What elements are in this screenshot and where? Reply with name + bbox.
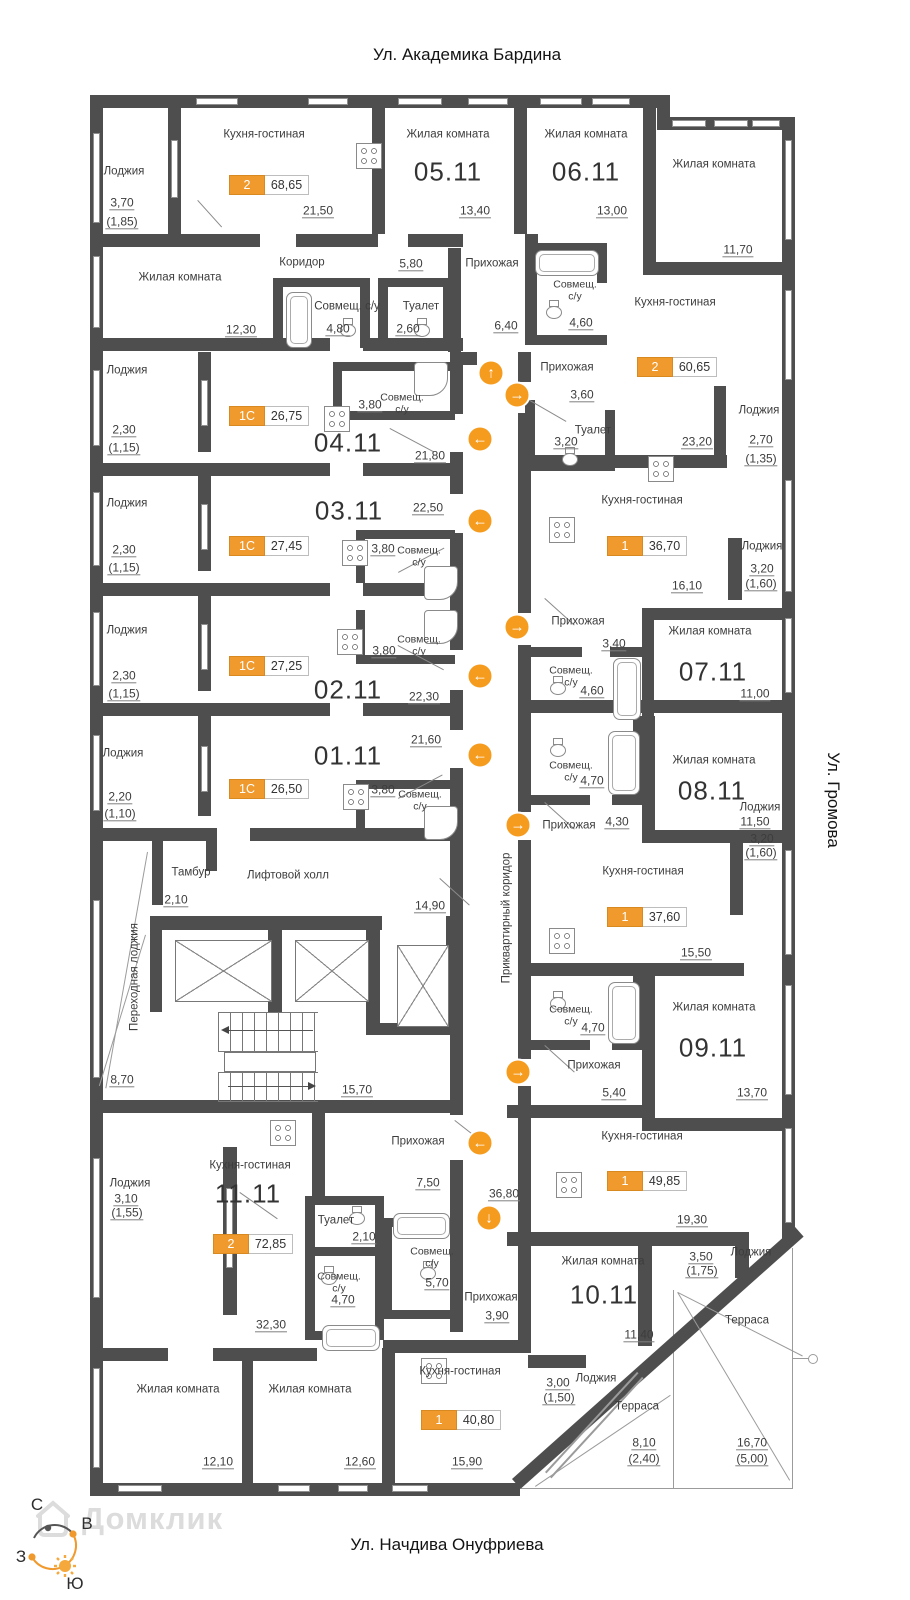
entrance-arrow-icon: → — [505, 1059, 532, 1086]
apartment-number: 03.11 — [315, 496, 383, 527]
dimension-label: 12,10 — [202, 1454, 234, 1469]
room-label: Жилая комната — [406, 129, 489, 142]
dimension-label: (1,75) — [685, 1263, 718, 1278]
apartment-number: 05.11 — [414, 157, 482, 188]
unit-badge: 140,80 — [421, 1410, 501, 1430]
window — [592, 98, 630, 105]
window — [278, 1485, 310, 1492]
window — [171, 140, 178, 198]
wall — [450, 452, 463, 494]
stairs-landing — [224, 1052, 316, 1072]
dimension-label: 13,70 — [736, 1085, 768, 1100]
unit-area-value: 68,65 — [265, 175, 309, 195]
compass-east-label: В — [81, 1514, 92, 1534]
window — [785, 618, 792, 693]
room-label: Кухня-гостиная — [601, 1131, 682, 1144]
stairs-arrow-line — [228, 1030, 313, 1031]
compass-north-label: С — [31, 1495, 43, 1515]
dimension-label: 2,10 — [163, 892, 188, 907]
wall — [530, 647, 582, 657]
room-label: Совмещ. с/у — [410, 1246, 454, 1270]
dimension-label: 14,90 — [414, 898, 446, 913]
elevator-icon — [397, 945, 449, 1027]
dimension-label: 3,60 — [569, 387, 594, 402]
wall — [356, 530, 455, 539]
stairs-arrow-icon — [308, 1082, 316, 1090]
stove-icon — [556, 1172, 582, 1198]
dimension-label: 16,70 — [736, 1435, 768, 1450]
window — [338, 1485, 368, 1492]
unit-badge: 272,85 — [213, 1234, 293, 1254]
dimension-label: 7,50 — [415, 1175, 440, 1190]
dimension-label: 11,40 — [623, 1327, 654, 1342]
stove-icon — [648, 456, 674, 482]
window — [785, 290, 792, 380]
unit-type-badge: 2 — [213, 1234, 249, 1254]
window — [201, 504, 208, 550]
wall — [242, 1361, 253, 1483]
room-label: Прихожая — [542, 820, 595, 833]
window — [785, 1128, 792, 1223]
window — [93, 256, 100, 328]
wall — [363, 463, 463, 476]
unit-area-value: 26,75 — [265, 406, 309, 426]
dimension-label: 12,30 — [225, 322, 257, 337]
room-label: Лоджия — [104, 166, 145, 179]
apartment-number: 10.11 — [570, 1280, 638, 1311]
wall — [382, 1348, 395, 1483]
dimension-label: 4,30 — [604, 814, 629, 829]
room-label: Кухня-гостиная — [209, 1160, 290, 1173]
room-label: Прихожая — [465, 258, 518, 271]
entrance-arrow-icon: ↑ — [478, 360, 505, 387]
wall — [642, 608, 782, 620]
room-label: Лоджия — [107, 498, 148, 511]
wall — [378, 278, 453, 287]
dimension-label: 3,80 — [357, 397, 382, 412]
unit-type-badge: 1С — [229, 536, 265, 556]
dimension-label: (1,60) — [744, 845, 777, 860]
wall — [103, 234, 260, 247]
wall — [507, 1105, 642, 1118]
wall — [90, 95, 670, 108]
dimension-label: 15,50 — [680, 945, 712, 960]
room-label: Совмещ. с/у — [317, 1271, 361, 1295]
stove-icon — [342, 540, 368, 566]
unit-area-value: 36,70 — [643, 536, 687, 556]
dimension-label: 4,70 — [580, 1020, 605, 1035]
unit-badge: 1С27,25 — [229, 656, 309, 676]
room-label: Лоджия — [103, 748, 144, 761]
room-label: Жилая комната — [672, 159, 755, 172]
wall — [90, 583, 330, 596]
wall — [296, 234, 378, 247]
unit-type-badge: 1 — [421, 1410, 457, 1430]
dimension-label: (1,15) — [107, 560, 140, 575]
dimension-label: 3,80 — [370, 541, 395, 556]
bathtub-icon — [608, 731, 640, 795]
dimension-label: 13,00 — [596, 203, 628, 218]
wall — [531, 963, 744, 976]
wall — [383, 1340, 531, 1353]
dimension-label: 8,10 — [631, 1435, 656, 1450]
room-label: Туалет — [575, 425, 611, 438]
wall — [525, 400, 535, 470]
window — [93, 133, 100, 223]
wall — [90, 703, 330, 716]
dimension-label: 4,80 — [325, 321, 350, 336]
entrance-arrow-icon: ← — [467, 426, 494, 453]
dimension-label: 11,00 — [739, 686, 770, 701]
entrance-arrow-icon: ← — [467, 742, 494, 769]
room-label: Переходная лоджия — [129, 923, 142, 1031]
wall — [448, 248, 461, 352]
bathtub-icon — [322, 1325, 380, 1351]
wall — [312, 1113, 325, 1201]
unit-type-badge: 2 — [229, 175, 265, 195]
window — [752, 120, 780, 127]
dimension-label: (1,10) — [103, 806, 136, 821]
toilet-icon — [546, 306, 562, 319]
unit-area-value: 72,85 — [249, 1234, 293, 1254]
wall — [363, 338, 463, 351]
wall — [103, 1348, 168, 1361]
dimension-label: 4,70 — [579, 773, 604, 788]
unit-area-value: 27,45 — [265, 536, 309, 556]
room-label: Прихожая — [540, 362, 593, 375]
wall — [518, 840, 531, 1059]
dimension-label: 2,30 — [111, 542, 136, 557]
entrance-arrow-icon: ↓ — [476, 1205, 503, 1232]
wall — [90, 828, 217, 841]
dimension-label: 21,60 — [410, 732, 442, 747]
room-label: Прихожая — [551, 616, 604, 629]
room-label: Жилая комната — [668, 626, 751, 639]
unit-area-value: 40,80 — [457, 1410, 501, 1430]
street-label-top: Ул. Академика Бардина — [373, 45, 561, 65]
compass-west-label: З — [16, 1547, 26, 1567]
unit-type-badge: 1 — [607, 907, 643, 927]
dimension-label: 4,60 — [579, 683, 604, 698]
dimension-label: (1,55) — [110, 1205, 143, 1220]
dimension-label: 11,50 — [739, 814, 770, 829]
dimension-label: (1,60) — [744, 576, 777, 591]
room-label: Жилая комната — [672, 755, 755, 768]
wall — [525, 335, 607, 345]
room-label: Совмещ. с/у — [380, 392, 424, 416]
dimension-label: (1,85) — [105, 214, 138, 229]
dimension-label: 3,80 — [370, 782, 395, 797]
dimension-label: 5,80 — [398, 256, 423, 271]
wall — [305, 1196, 315, 1254]
dimension-label: 12,60 — [344, 1454, 376, 1469]
dimension-label: 2,70 — [748, 432, 773, 447]
dimension-label: 6,40 — [493, 318, 518, 333]
dimension-label: (5,00) — [735, 1451, 768, 1466]
wall — [528, 1355, 586, 1368]
window — [398, 98, 442, 105]
unit-type-badge: 1 — [607, 536, 643, 556]
room-label: Лоджия — [731, 1247, 772, 1260]
dimension-label: 32,30 — [255, 1317, 287, 1332]
room-label: Лоджия — [107, 625, 148, 638]
floor-plan: ЛоджияКухня-гостинаяЖилая комнатаЖилая к… — [0, 0, 910, 1600]
dimension-label: (2,40) — [627, 1451, 660, 1466]
room-label: Жилая комната — [138, 272, 221, 285]
room-label: Кухня-гостиная — [601, 495, 682, 508]
window — [785, 850, 792, 955]
toilet-icon — [550, 744, 566, 757]
wall — [463, 352, 477, 365]
room-label: Прихожая — [464, 1292, 517, 1305]
window — [93, 370, 100, 446]
wall — [728, 538, 742, 600]
dimension-label: 3,70 — [109, 195, 134, 210]
unit-badge: 260,65 — [637, 357, 717, 377]
railing-line — [673, 1290, 674, 1488]
diagonal-wall — [197, 200, 222, 227]
window — [201, 746, 208, 792]
room-label: Прихожая — [567, 1060, 620, 1073]
entrance-arrow-icon: ← — [467, 1130, 494, 1157]
dimension-label: 5,40 — [601, 1085, 626, 1100]
wall — [305, 1256, 315, 1340]
stove-icon — [270, 1120, 296, 1146]
wall — [408, 234, 463, 247]
street-label-right: Ул. Громова — [823, 752, 843, 848]
dimension-label: 3,90 — [484, 1308, 509, 1323]
stove-icon — [549, 928, 575, 954]
unit-badge: 268,65 — [229, 175, 309, 195]
dimension-label: 15,90 — [451, 1454, 483, 1469]
unit-badge: 1С27,45 — [229, 536, 309, 556]
apartment-number: 04.11 — [314, 428, 382, 459]
wall — [642, 976, 655, 1118]
entrance-arrow-icon: → — [504, 382, 531, 409]
unit-type-badge: 1С — [229, 656, 265, 676]
dimension-label: (1,15) — [107, 440, 140, 455]
dimension-label: 11,70 — [722, 242, 753, 257]
dimension-label: 21,80 — [414, 448, 446, 463]
dimension-label: 15,70 — [341, 1082, 373, 1097]
toilet-icon — [562, 453, 578, 466]
wall — [530, 1040, 590, 1050]
elevator-icon — [295, 940, 369, 1002]
compass-rose-icon — [8, 1462, 118, 1594]
window — [93, 900, 100, 1078]
wall — [642, 1118, 782, 1131]
apartment-number: 02.11 — [314, 675, 382, 706]
room-label: Кухня-гостиная — [602, 866, 683, 879]
dimension-label: 13,40 — [459, 203, 491, 218]
dimension-label: 3,20 — [749, 561, 774, 576]
dimension-label: 3,00 — [545, 1375, 570, 1390]
room-label: Совмещ. с/у — [397, 634, 441, 658]
apartment-number: 09.11 — [679, 1033, 747, 1064]
unit-type-badge: 1С — [229, 406, 265, 426]
compass-south-label: Ю — [66, 1574, 83, 1594]
stove-icon — [337, 629, 363, 655]
dimension-label: 21,50 — [302, 203, 334, 218]
window — [93, 735, 100, 811]
unit-badge: 1С26,50 — [229, 779, 309, 799]
window — [93, 612, 100, 686]
wall — [518, 1248, 531, 1345]
wall — [643, 108, 656, 275]
window — [308, 98, 348, 105]
unit-badge: 149,85 — [607, 1171, 687, 1191]
wall — [642, 716, 655, 836]
dimension-label: 36,80 — [488, 1186, 520, 1201]
apartment-number: 07.11 — [679, 657, 747, 688]
wall — [273, 278, 368, 287]
wall — [605, 410, 615, 470]
room-label: Туалет — [403, 301, 439, 314]
window — [201, 380, 208, 426]
dimension-label: 2,60 — [395, 321, 420, 336]
room-label: Жилая комната — [268, 1384, 351, 1397]
room-label: Совмещ. с/у — [397, 545, 441, 569]
apartment-number: 11.11 — [215, 1179, 281, 1210]
unit-area-value: 49,85 — [643, 1171, 687, 1191]
room-label: Коридор — [279, 257, 324, 270]
apartment-number: 06.11 — [552, 157, 620, 188]
wall — [152, 841, 163, 905]
dimension-label: 23,20 — [681, 434, 713, 449]
compass: С В З Ю — [8, 1462, 118, 1594]
dimension-label: 2,20 — [107, 789, 132, 804]
apartment-number: 08.11 — [678, 776, 746, 807]
window — [540, 98, 582, 105]
window — [93, 492, 100, 566]
dimension-label: 3,20 — [553, 434, 578, 449]
room-label: Лоджия — [110, 1178, 151, 1191]
window — [93, 1368, 100, 1468]
wall — [518, 352, 531, 382]
wall — [305, 1247, 383, 1256]
railing-line — [792, 1248, 793, 1488]
stove-icon — [356, 143, 382, 169]
dimension-label: 4,60 — [568, 315, 593, 330]
wall — [518, 645, 531, 812]
wall — [612, 795, 642, 805]
entrance-arrow-icon: ← — [467, 508, 494, 535]
wall — [383, 1310, 463, 1319]
stairs-icon — [218, 1012, 318, 1052]
unit-area-value: 27,25 — [265, 656, 309, 676]
dimension-label: 19,30 — [676, 1212, 708, 1227]
bathtub-icon — [613, 658, 641, 720]
street-label-bottom: Ул. Начдива Онуфриева — [350, 1535, 543, 1555]
room-label: Лифтовой холл — [247, 870, 329, 883]
room-label: Жилая комната — [136, 1384, 219, 1397]
wall — [730, 843, 743, 915]
room-label: Жилая комната — [544, 129, 627, 142]
dimension-label: 2,30 — [111, 422, 136, 437]
railing-line — [515, 1488, 793, 1489]
stairs-icon — [218, 1072, 318, 1102]
dimension-label: 4,70 — [330, 1292, 355, 1307]
unit-area-value: 26,50 — [265, 779, 309, 799]
room-label: Жилая комната — [561, 1256, 644, 1269]
stairs-arrow-icon — [221, 1026, 229, 1034]
unit-badge: 136,70 — [607, 536, 687, 556]
dimension-label: (1,50) — [542, 1390, 575, 1405]
wall — [530, 795, 590, 805]
window — [785, 985, 792, 1095]
room-label: Лоджия — [107, 365, 148, 378]
wall — [450, 690, 463, 730]
room-label: Кухня-гостиная — [223, 129, 304, 142]
stairs-arrow-line — [228, 1086, 308, 1087]
wall — [383, 1227, 392, 1319]
unit-type-badge: 1 — [607, 1171, 643, 1191]
window — [785, 140, 792, 240]
wall — [514, 108, 527, 234]
room-label: Совмещ. с/у — [553, 279, 597, 303]
diagonal-wall — [105, 852, 148, 1089]
window — [714, 120, 748, 127]
room-label: Приквартирный коридор — [501, 853, 514, 984]
room-label: Тамбур — [171, 867, 210, 880]
bathtub-icon — [393, 1213, 450, 1239]
room-label: Кухня-гостиная — [634, 297, 715, 310]
window — [118, 1485, 162, 1492]
room-label: Туалет — [318, 1215, 354, 1228]
stove-icon — [343, 784, 369, 810]
bathtub-icon — [286, 292, 312, 348]
dimension-marker-icon — [808, 1354, 818, 1364]
room-label: Лоджия — [576, 1373, 617, 1386]
entrance-arrow-icon: ← — [467, 663, 494, 690]
wall — [507, 1232, 749, 1246]
wall — [150, 916, 382, 930]
dimension-label: 22,50 — [412, 500, 444, 515]
dimension-label: 3,80 — [371, 643, 396, 658]
window — [468, 98, 508, 105]
room-label: Терраса — [615, 1401, 659, 1414]
dimension-label: 8,70 — [109, 1072, 134, 1087]
unit-type-badge: 1С — [229, 779, 265, 799]
wall — [531, 700, 782, 713]
window — [93, 1158, 100, 1298]
room-label: Кухня-гостиная — [419, 1366, 500, 1379]
stove-icon — [549, 517, 575, 543]
dimension-label: 2,30 — [111, 668, 136, 683]
room-label: Жилая комната — [672, 1002, 755, 1015]
wall — [450, 352, 463, 414]
dimension-label: 16,10 — [671, 578, 703, 593]
dimension-label: (1,35) — [744, 451, 777, 466]
wall — [305, 1196, 383, 1205]
entrance-arrow-icon: → — [505, 812, 532, 839]
dimension-label: (1,15) — [107, 686, 140, 701]
wall — [150, 916, 162, 1012]
unit-badge: 1С26,75 — [229, 406, 309, 426]
window — [672, 120, 706, 127]
unit-area-value: 60,65 — [673, 357, 717, 377]
room-label: Прихожая — [391, 1136, 444, 1149]
apartment-number: 01.11 — [314, 741, 382, 772]
wall — [213, 1348, 317, 1361]
entrance-arrow-icon: → — [504, 614, 531, 641]
room-label: Совмещ. с/у — [314, 301, 380, 314]
room-label: Совмещ. с/у — [398, 789, 442, 813]
bathtub-icon — [535, 250, 599, 276]
room-label: Терраса — [725, 1315, 769, 1328]
bathtub-icon — [608, 982, 640, 1044]
wall — [643, 262, 782, 275]
